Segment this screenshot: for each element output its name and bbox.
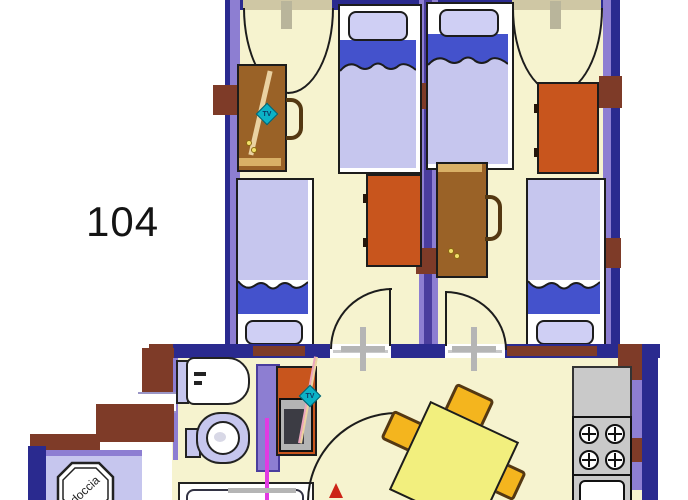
tv-marker-label: TV [263, 110, 272, 117]
blanket [340, 58, 416, 168]
survey-cross [471, 327, 477, 371]
survey-cross [360, 327, 366, 371]
faucet [194, 372, 206, 376]
desk-end [438, 164, 482, 172]
blanket [528, 180, 600, 280]
desk-lamp-dot [246, 140, 252, 146]
blanket [428, 52, 508, 164]
door-leaf [389, 288, 391, 346]
desk-chair [286, 98, 303, 140]
pillow [536, 320, 594, 345]
bed [338, 4, 422, 174]
desk-lamp-dot [454, 253, 460, 259]
toilet [196, 412, 250, 464]
wall [253, 346, 305, 356]
desk-chair [485, 195, 502, 241]
blanket-fold [340, 40, 416, 60]
tv-marker-label: TV [306, 392, 315, 399]
desk-lamp-dot [251, 147, 257, 153]
burner [605, 424, 625, 444]
door-leaf [445, 291, 447, 346]
blanket-edge [340, 58, 416, 74]
wardrobe [366, 174, 422, 267]
kitchen-sink-basin [579, 480, 625, 500]
desk-lamp-dot [448, 248, 454, 254]
wardrobe-knob [363, 194, 368, 203]
burner [605, 450, 625, 470]
kitchen-sink [572, 474, 632, 500]
pillow [439, 9, 499, 37]
radiator [213, 85, 240, 115]
kitchen-counter [572, 366, 632, 420]
cooktop [572, 416, 632, 478]
wall [611, 0, 620, 358]
blanket-edge [428, 52, 508, 68]
floor-plan: 104 [0, 0, 688, 500]
bed [526, 178, 606, 352]
desk [436, 162, 488, 278]
entrance-arrow [329, 483, 343, 498]
burner [579, 450, 599, 470]
blanket-fold [428, 34, 508, 54]
wardrobe-knob [534, 148, 539, 157]
radiator [599, 76, 622, 108]
faucet [194, 381, 202, 385]
blanket-fold [238, 292, 308, 314]
wall [96, 404, 174, 442]
washbasin [186, 357, 250, 405]
pillow [348, 11, 408, 41]
unit-label: 104 [86, 198, 159, 246]
wall [507, 346, 597, 356]
burner [579, 424, 599, 444]
wardrobe [537, 82, 599, 174]
blanket [238, 180, 308, 280]
bed [236, 178, 314, 352]
entrance-threshold-mark [228, 488, 296, 493]
wardrobe-knob [534, 104, 539, 113]
toilet-drain [214, 432, 226, 442]
bed [426, 2, 514, 170]
blanket-fold [528, 292, 600, 314]
wall [28, 446, 46, 500]
pillow [245, 320, 303, 345]
wardrobe-knob [363, 238, 368, 247]
wall [642, 344, 658, 500]
desk-end [239, 158, 281, 166]
shower-tray: doccia [54, 460, 116, 500]
